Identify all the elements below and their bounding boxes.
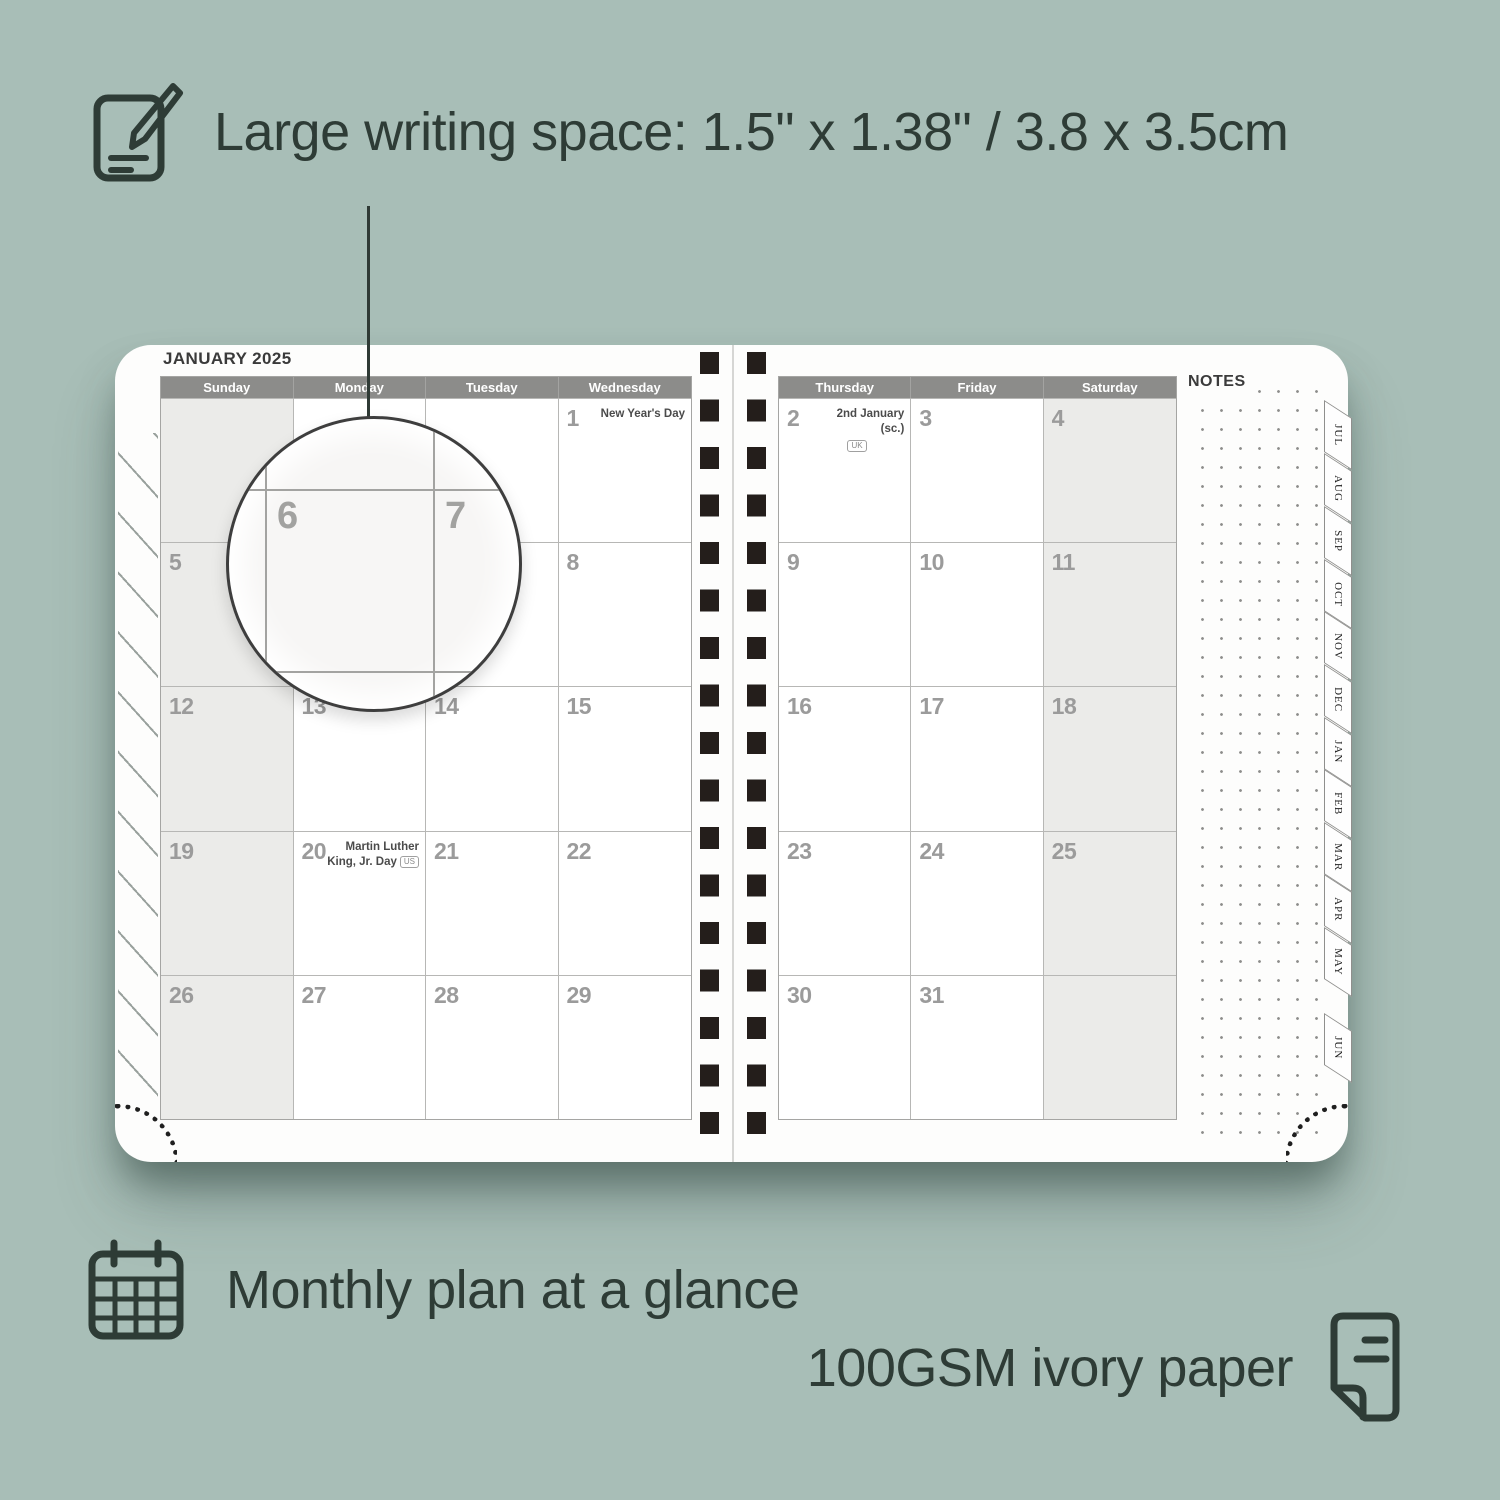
day-number: 30: [787, 982, 812, 1009]
calendar-day-cell: [1044, 975, 1176, 1119]
calendar-day-cell: 31: [911, 975, 1043, 1119]
day-number: 20: [302, 838, 327, 865]
country-badge: UK: [847, 440, 866, 452]
notes-dot-grid: NOTES: [1185, 376, 1333, 1146]
calendar-day-cell: 22nd January (sc.)UK: [779, 398, 911, 542]
page-divider: [732, 345, 734, 1162]
calendar-day-cell: 1New Year's Day: [559, 398, 692, 542]
spiral-binding-right: [747, 352, 766, 1134]
calendar-grid-icon: [84, 1238, 188, 1342]
calendar-day-cell: 12: [161, 686, 294, 830]
feature-paper: 100GSM ivory paper: [807, 1310, 1407, 1426]
feature-writing-space-label: Large writing space: 1.5" x 1.38" / 3.8 …: [214, 101, 1288, 163]
calendar-day-cell: 18: [1044, 686, 1176, 830]
day-of-week-header: Wednesday: [559, 377, 692, 398]
feature-paper-label: 100GSM ivory paper: [807, 1337, 1293, 1399]
day-of-week-header: Tuesday: [426, 377, 559, 398]
day-number: 2: [787, 405, 799, 432]
day-number: 17: [919, 693, 944, 720]
calendar-day-cell: 30: [779, 975, 911, 1119]
calendar-day-cell: 9: [779, 542, 911, 686]
day-number: 28: [434, 982, 459, 1009]
magnified-grid-line: [229, 489, 519, 491]
calendar-day-cell: 28: [426, 975, 559, 1119]
day-number: 11: [1052, 549, 1075, 576]
magnified-day-number: 6: [277, 495, 298, 538]
notepad-pencil-icon: [88, 78, 188, 186]
day-number: 5: [169, 549, 181, 576]
calendar-day-cell: 4: [1044, 398, 1176, 542]
corner-dotted-arc-left: [115, 1100, 177, 1162]
day-number: 3: [919, 405, 931, 432]
day-number: 8: [567, 549, 579, 576]
spiral-binding-left: [700, 352, 719, 1134]
magnified-grid-line: [229, 671, 519, 673]
day-header-row: SundayMondayTuesdayWednesday: [161, 377, 691, 398]
day-number: 22: [567, 838, 592, 865]
day-number: 26: [169, 982, 194, 1009]
page-edge-hatch: [118, 433, 158, 1109]
calendar-day-cell: 27: [294, 975, 427, 1119]
calendar-day-cell: 17: [911, 686, 1043, 830]
calendar-day-cell: 19: [161, 831, 294, 975]
calendar-day-cell: 3: [911, 398, 1043, 542]
feature-monthly-plan-label: Monthly plan at a glance: [226, 1259, 799, 1321]
month-tab-jun: JUN: [1324, 1013, 1352, 1083]
month-tab-strip: JULAUGSEPOCTNOVDECJANFEBMARAPRMAYJUN: [1324, 345, 1352, 1162]
day-number: 27: [302, 982, 327, 1009]
holiday-label: Martin Luther King, Jr. DayUS: [324, 840, 419, 870]
day-number: 16: [787, 693, 812, 720]
feature-writing-space: Large writing space: 1.5" x 1.38" / 3.8 …: [88, 78, 1288, 186]
calendar-day-cell: 24: [911, 831, 1043, 975]
notes-label: NOTES: [1185, 373, 1255, 396]
calendar-day-cell: 15: [559, 686, 692, 830]
day-number: 23: [787, 838, 812, 865]
calendar-day-cell: 8: [559, 542, 692, 686]
holiday-label: 2nd January (sc.)UK: [810, 407, 905, 452]
calendar-right-page: ThursdayFridaySaturday 22nd January (sc.…: [778, 376, 1177, 1120]
country-badge: US: [400, 856, 419, 868]
calendar-day-cell: 11: [1044, 542, 1176, 686]
day-number: 19: [169, 838, 194, 865]
calendar-day-cell: 21: [426, 831, 559, 975]
calendar-day-cell: 29: [559, 975, 692, 1119]
calendar-day-cell: 26: [161, 975, 294, 1119]
day-number: 18: [1052, 693, 1077, 720]
day-number: 4: [1052, 405, 1064, 432]
day-number: 21: [434, 838, 459, 865]
calendar-day-cell: 20Martin Luther King, Jr. DayUS: [294, 831, 427, 975]
day-of-week-header: Thursday: [779, 377, 911, 398]
day-number: 10: [919, 549, 944, 576]
day-number: 9: [787, 549, 799, 576]
callout-connector-line: [367, 206, 370, 420]
day-number: 24: [919, 838, 944, 865]
holiday-label: New Year's Day: [601, 407, 685, 422]
day-number: 25: [1052, 838, 1077, 865]
magnified-grid-line: [433, 419, 435, 709]
day-of-week-header: Sunday: [161, 377, 294, 398]
feature-monthly-plan: Monthly plan at a glance: [84, 1238, 799, 1342]
day-number: 31: [919, 982, 944, 1009]
day-of-week-header: Saturday: [1044, 377, 1176, 398]
magnified-day-number: 7: [445, 495, 466, 538]
paper-sheet-icon: [1323, 1310, 1407, 1426]
day-of-week-header: Monday: [294, 377, 427, 398]
calendar-day-cell: 23: [779, 831, 911, 975]
calendar-day-cell: 25: [1044, 831, 1176, 975]
day-number: 12: [169, 693, 194, 720]
day-of-week-header: Friday: [911, 377, 1043, 398]
month-title: JANUARY 2025: [163, 349, 292, 369]
calendar-day-cell: 22: [559, 831, 692, 975]
calendar-grid-right: 22nd January (sc.)UK34910111617182324253…: [779, 398, 1176, 1119]
day-header-row: ThursdayFridaySaturday: [779, 377, 1176, 398]
day-number: 1: [567, 405, 579, 432]
day-number: 15: [567, 693, 592, 720]
planner-product-image: Large writing space: 1.5" x 1.38" / 3.8 …: [0, 0, 1500, 1500]
corner-dotted-arc-right: [1286, 1100, 1348, 1162]
calendar-day-cell: 16: [779, 686, 911, 830]
calendar-day-cell: 10: [911, 542, 1043, 686]
magnified-grid-line: [265, 419, 267, 709]
day-number: 29: [567, 982, 592, 1009]
magnifier-circle: 6 7: [226, 416, 522, 712]
calendar-day-cell: 14: [426, 686, 559, 830]
